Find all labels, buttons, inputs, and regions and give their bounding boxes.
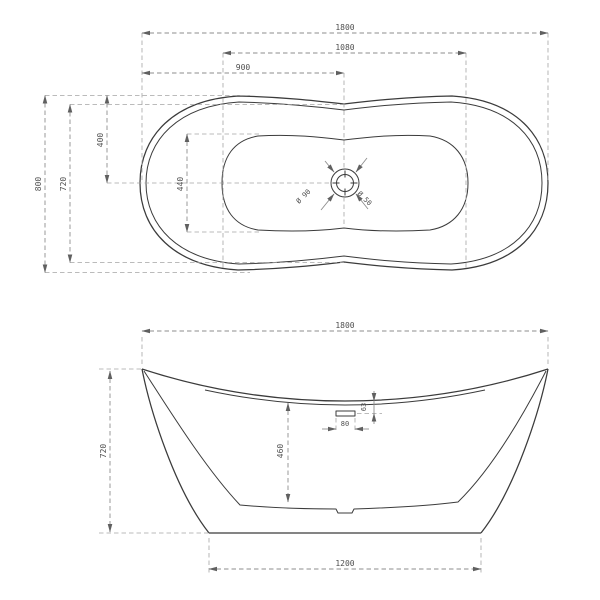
dim-label-overall-width: 800 <box>34 177 43 192</box>
top-view: Ø 90 Ø 50 1800 1080 900 <box>34 23 548 273</box>
dim-label-drain-outer-dia: Ø 90 <box>295 188 313 206</box>
left-outer-wall <box>142 369 209 533</box>
drain-dia90-leader-lower <box>321 194 334 210</box>
top-view-dimensions: 1800 1080 900 800 720 400 440 <box>34 23 548 273</box>
dim-label-overall-length-front: 1800 <box>335 321 354 330</box>
rim-inner-edge-curve <box>205 390 485 405</box>
dim-label-basin-width: 440 <box>176 177 185 192</box>
drain-dia50-leader-upper <box>325 161 334 172</box>
dim-label-overflow-drop: 63 <box>360 403 368 411</box>
dim-label-drain-center: 900 <box>236 63 251 72</box>
front-view-dimensions: 1800 720 460 63 80 1200 <box>99 321 548 569</box>
inner-wall-and-floor <box>144 371 546 513</box>
dim-label-base-length: 1200 <box>335 559 354 568</box>
rim-top-curve <box>142 369 548 401</box>
drain-dia90-leader-upper <box>356 158 367 172</box>
dim-label-overall-length: 1800 <box>335 23 354 32</box>
dim-label-inner-depth: 460 <box>276 444 285 459</box>
dim-label-waist-width: 720 <box>59 177 68 192</box>
overflow-slot <box>336 411 355 416</box>
technical-drawing: Ø 90 Ø 50 1800 1080 900 <box>0 0 600 600</box>
front-view: 1800 720 460 63 80 1200 <box>99 321 548 574</box>
top-view-extension-lines <box>45 33 548 273</box>
dim-label-basin-length: 1080 <box>335 43 354 52</box>
dim-label-overall-height: 720 <box>99 444 108 459</box>
drain-symbol: Ø 90 Ø 50 <box>295 158 373 210</box>
right-outer-wall <box>481 369 548 533</box>
drawing-sheet: Ø 90 Ø 50 1800 1080 900 <box>0 0 600 600</box>
dim-label-rim-to-center: 400 <box>96 133 105 148</box>
dim-label-overflow-width: 80 <box>341 420 349 428</box>
front-view-extension-lines <box>99 337 548 574</box>
